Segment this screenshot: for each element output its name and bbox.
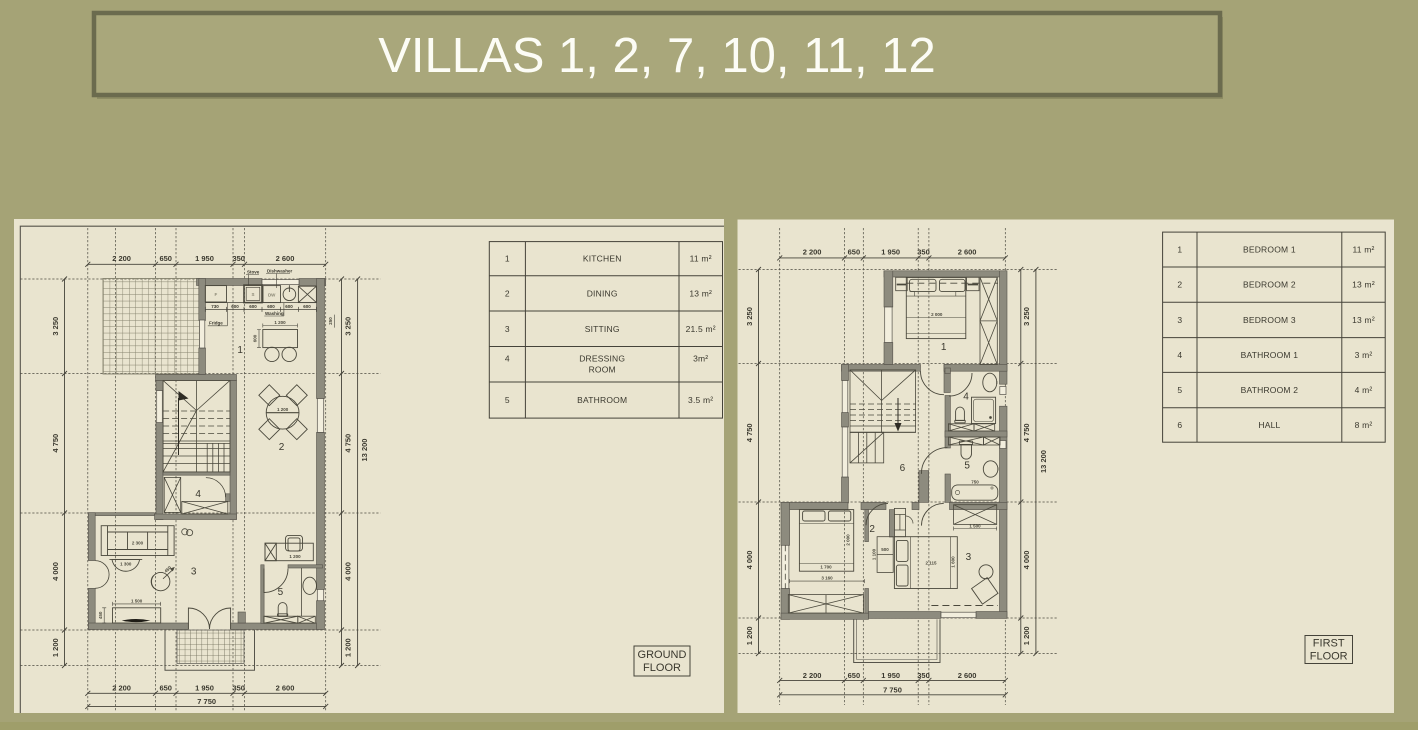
svg-text:F: F xyxy=(215,292,218,297)
svg-text:2 115: 2 115 xyxy=(925,561,937,566)
svg-text:2 600: 2 600 xyxy=(276,254,295,263)
svg-text:450: 450 xyxy=(98,611,103,619)
svg-text:3 m²: 3 m² xyxy=(1355,350,1373,360)
svg-text:3 250: 3 250 xyxy=(51,317,60,336)
svg-text:4 m²: 4 m² xyxy=(1355,385,1373,395)
svg-text:Fridge: Fridge xyxy=(209,321,223,326)
svg-text:600: 600 xyxy=(303,304,311,309)
svg-text:2 300: 2 300 xyxy=(132,541,144,546)
svg-text:DW: DW xyxy=(268,293,276,298)
svg-text:BATHROOM 2: BATHROOM 2 xyxy=(1241,385,1299,395)
svg-text:FIRST: FIRST xyxy=(1313,638,1345,650)
svg-text:BEDROOM 3: BEDROOM 3 xyxy=(1243,315,1296,325)
svg-text:FLOOR: FLOOR xyxy=(643,662,681,674)
svg-text:600: 600 xyxy=(249,304,257,309)
svg-text:650: 650 xyxy=(159,254,172,263)
svg-text:1 500: 1 500 xyxy=(969,524,981,529)
svg-text:650: 650 xyxy=(848,671,861,680)
svg-text:2 000: 2 000 xyxy=(846,534,851,546)
svg-text:S: S xyxy=(251,292,254,297)
svg-text:6: 6 xyxy=(1177,420,1182,430)
svg-text:6: 6 xyxy=(900,463,906,474)
svg-text:350: 350 xyxy=(917,248,930,257)
svg-text:13 m²: 13 m² xyxy=(689,288,712,298)
svg-text:3 250: 3 250 xyxy=(1022,307,1031,326)
svg-text:350: 350 xyxy=(232,684,245,693)
svg-text:5: 5 xyxy=(505,395,510,405)
svg-text:2 600: 2 600 xyxy=(276,684,295,693)
svg-text:600: 600 xyxy=(253,334,258,342)
svg-text:4 000: 4 000 xyxy=(51,562,60,581)
svg-text:4 750: 4 750 xyxy=(344,434,353,453)
svg-text:730: 730 xyxy=(211,304,219,309)
svg-text:11 m²: 11 m² xyxy=(690,254,712,264)
svg-text:DRESSING: DRESSING xyxy=(579,353,625,363)
svg-text:2 600: 2 600 xyxy=(958,248,977,257)
svg-text:1 200: 1 200 xyxy=(274,320,286,325)
svg-text:1 100: 1 100 xyxy=(872,548,877,560)
svg-text:2: 2 xyxy=(505,288,510,298)
svg-text:BEDROOM 1: BEDROOM 1 xyxy=(1243,245,1296,255)
svg-text:500: 500 xyxy=(881,547,889,552)
svg-text:4 000: 4 000 xyxy=(1022,551,1031,570)
svg-text:8 m²: 8 m² xyxy=(1355,420,1373,430)
svg-text:3 250: 3 250 xyxy=(344,317,353,336)
svg-text:1 200: 1 200 xyxy=(1022,626,1031,645)
svg-text:7 750: 7 750 xyxy=(883,686,902,695)
svg-text:1 950: 1 950 xyxy=(881,248,900,257)
svg-text:1 200: 1 200 xyxy=(745,626,754,645)
svg-text:3: 3 xyxy=(505,324,510,334)
svg-text:600: 600 xyxy=(267,304,275,309)
svg-text:ROOM: ROOM xyxy=(589,364,616,374)
svg-text:1 200: 1 200 xyxy=(277,407,289,412)
svg-text:1 200: 1 200 xyxy=(344,638,353,657)
svg-text:2 200: 2 200 xyxy=(112,254,131,263)
svg-text:1: 1 xyxy=(237,345,243,356)
svg-text:5: 5 xyxy=(964,461,970,472)
svg-text:DINING: DINING xyxy=(587,288,618,298)
svg-text:2: 2 xyxy=(1177,280,1182,290)
svg-text:Dishwasher: Dishwasher xyxy=(267,269,293,274)
svg-text:KITCHEN: KITCHEN xyxy=(583,254,622,264)
svg-text:13 200: 13 200 xyxy=(360,439,369,462)
svg-text:3: 3 xyxy=(966,552,972,563)
svg-text:2 200: 2 200 xyxy=(803,248,822,257)
svg-text:600: 600 xyxy=(285,304,293,309)
svg-text:1: 1 xyxy=(1177,245,1182,255)
svg-text:4: 4 xyxy=(963,392,969,403)
svg-text:BEDROOM 2: BEDROOM 2 xyxy=(1243,280,1296,290)
svg-text:250: 250 xyxy=(328,317,333,325)
svg-text:1 700: 1 700 xyxy=(820,565,832,570)
svg-text:750: 750 xyxy=(971,480,979,485)
svg-text:3.5 m²: 3.5 m² xyxy=(688,395,713,405)
svg-text:1 200: 1 200 xyxy=(51,638,60,657)
svg-text:13 200: 13 200 xyxy=(1039,450,1048,473)
svg-text:HALL: HALL xyxy=(1258,420,1280,430)
svg-text:3: 3 xyxy=(1177,315,1182,325)
svg-text:2 200: 2 200 xyxy=(112,684,131,693)
svg-text:4 750: 4 750 xyxy=(1022,423,1031,442)
svg-text:GROUND: GROUND xyxy=(638,649,687,661)
svg-text:1 200: 1 200 xyxy=(289,554,301,559)
svg-text:7 750: 7 750 xyxy=(197,697,216,706)
svg-text:650: 650 xyxy=(848,248,861,257)
svg-text:2 000: 2 000 xyxy=(931,312,943,317)
svg-text:2 600: 2 600 xyxy=(958,671,977,680)
svg-text:11 m²: 11 m² xyxy=(1352,245,1374,255)
svg-text:FLOOR: FLOOR xyxy=(1310,651,1348,663)
svg-text:1 950: 1 950 xyxy=(195,254,214,263)
svg-text:4: 4 xyxy=(195,489,201,500)
svg-text:4 750: 4 750 xyxy=(745,423,754,442)
svg-text:1: 1 xyxy=(941,342,947,353)
svg-text:2 200: 2 200 xyxy=(803,671,822,680)
svg-text:2: 2 xyxy=(869,524,875,535)
svg-text:4: 4 xyxy=(1177,350,1182,360)
svg-text:2: 2 xyxy=(279,442,285,453)
svg-text:VILLAS 1, 2, 7, 10, 11, 12: VILLAS 1, 2, 7, 10, 11, 12 xyxy=(378,29,936,83)
svg-text:350: 350 xyxy=(917,671,930,680)
svg-text:13 m²: 13 m² xyxy=(1352,280,1375,290)
svg-text:4: 4 xyxy=(505,353,510,363)
svg-text:Washing: Washing xyxy=(265,311,284,316)
svg-text:3 250: 3 250 xyxy=(745,307,754,326)
svg-text:4 000: 4 000 xyxy=(745,551,754,570)
svg-text:3 160: 3 160 xyxy=(821,576,833,581)
svg-text:21.5 m²: 21.5 m² xyxy=(686,324,716,334)
svg-text:BATHROOM: BATHROOM xyxy=(577,395,627,405)
svg-text:BATHROOM 1: BATHROOM 1 xyxy=(1241,350,1299,360)
svg-text:5: 5 xyxy=(1177,385,1182,395)
svg-text:600: 600 xyxy=(231,304,239,309)
svg-text:1 500: 1 500 xyxy=(131,598,143,603)
svg-text:1 950: 1 950 xyxy=(195,684,214,693)
svg-text:SITTING: SITTING xyxy=(585,324,620,334)
svg-text:1 950: 1 950 xyxy=(881,671,900,680)
svg-text:1: 1 xyxy=(505,254,510,264)
svg-text:1 300: 1 300 xyxy=(120,562,132,567)
svg-text:13 m²: 13 m² xyxy=(1352,315,1375,325)
svg-text:1 600: 1 600 xyxy=(951,556,956,568)
svg-text:5: 5 xyxy=(278,587,284,598)
svg-text:350: 350 xyxy=(232,254,245,263)
svg-text:3m²: 3m² xyxy=(693,353,708,363)
svg-text:3: 3 xyxy=(191,567,197,578)
svg-text:Stove: Stove xyxy=(247,270,260,275)
svg-text:650: 650 xyxy=(159,684,172,693)
svg-text:4 750: 4 750 xyxy=(51,434,60,453)
svg-text:4 000: 4 000 xyxy=(344,562,353,581)
